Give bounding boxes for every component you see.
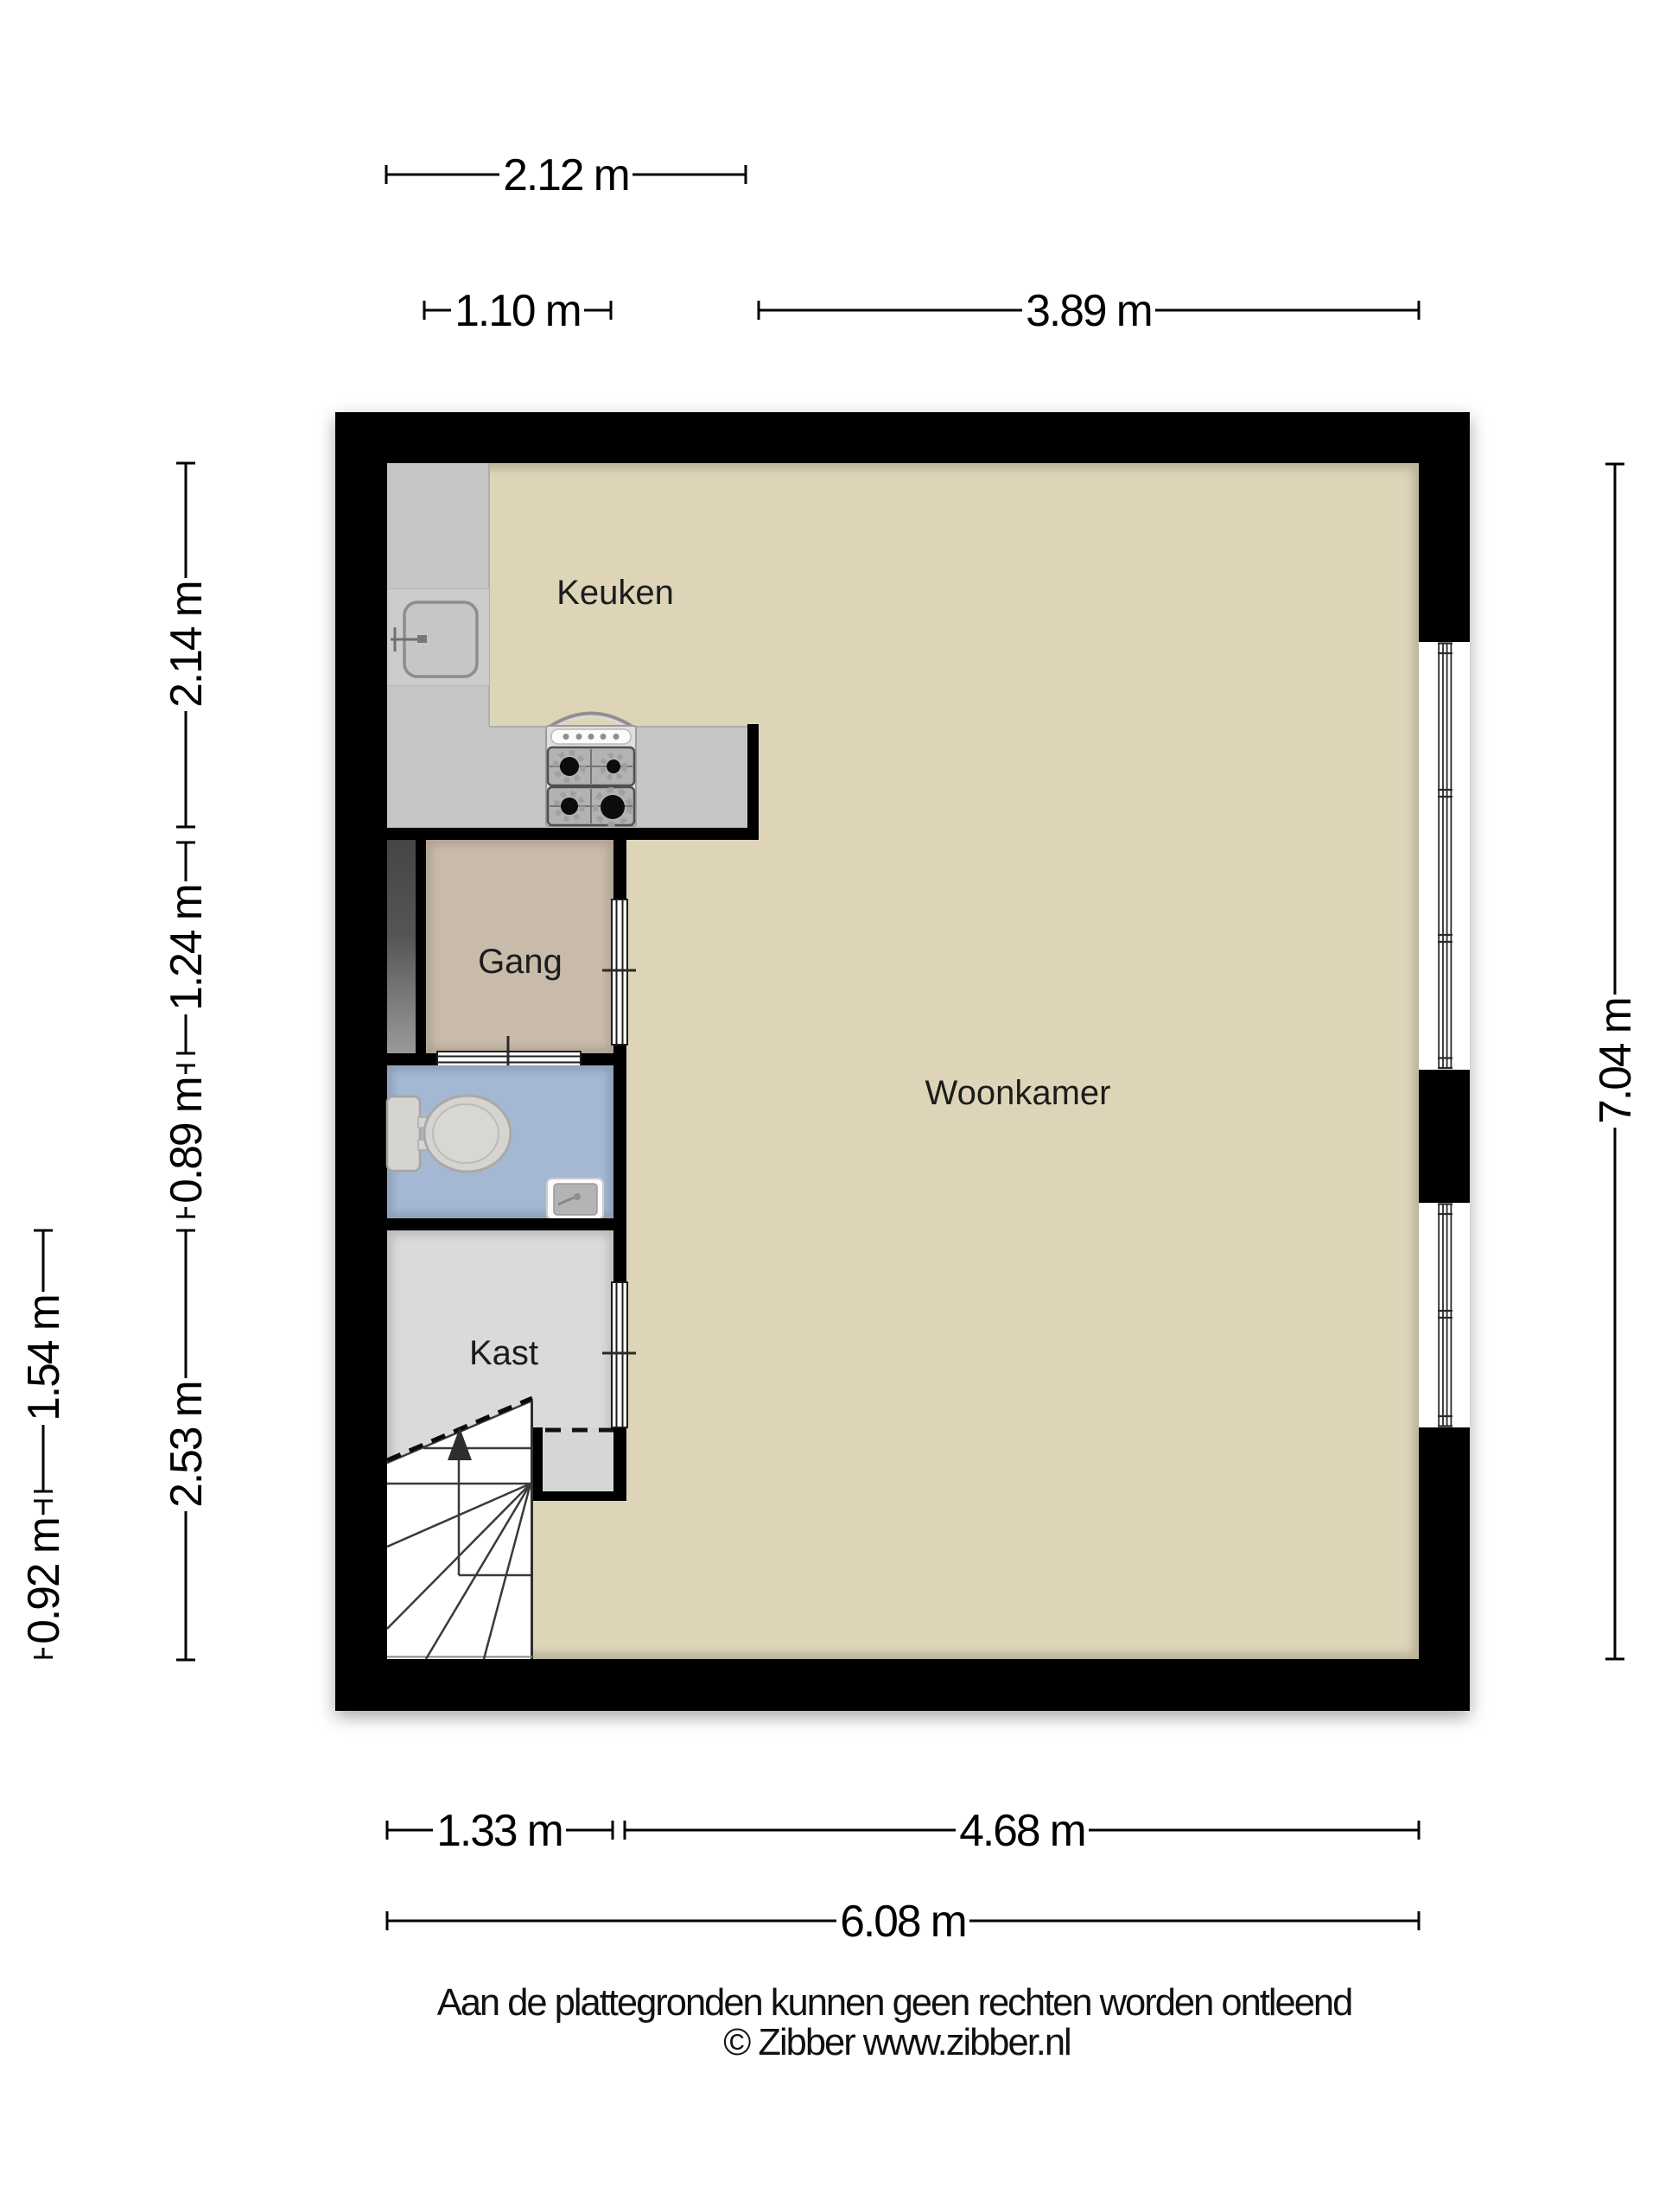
svg-text:0.92 m: 0.92 m — [18, 1518, 68, 1643]
svg-text:7.04 m: 7.04 m — [1590, 998, 1640, 1123]
svg-text:2.53 m: 2.53 m — [161, 1382, 211, 1507]
svg-text:1.24 m: 1.24 m — [161, 885, 211, 1010]
svg-text:Woonkamer: Woonkamer — [925, 1074, 1111, 1112]
svg-text:4.68 m: 4.68 m — [959, 1805, 1084, 1855]
svg-text:1.10 m: 1.10 m — [454, 285, 580, 335]
svg-text:Kast: Kast — [469, 1334, 538, 1372]
svg-text:Gang: Gang — [478, 943, 563, 981]
svg-text:6.08 m: 6.08 m — [840, 1896, 965, 1946]
svg-text:2.12 m: 2.12 m — [503, 149, 628, 200]
svg-text:0.89 m: 0.89 m — [161, 1077, 211, 1203]
svg-text:3.89 m: 3.89 m — [1026, 285, 1151, 335]
svg-text:Keuken: Keuken — [556, 574, 674, 612]
svg-text:2.14 m: 2.14 m — [161, 582, 211, 707]
svg-text:1.54 m: 1.54 m — [18, 1295, 68, 1421]
svg-text:1.33 m: 1.33 m — [436, 1805, 562, 1855]
svg-text:Aan de plattegronden kunnen ge: Aan de plattegronden kunnen geen rechten… — [437, 1982, 1352, 2024]
svg-text:© Zibber www.zibber.nl: © Zibber www.zibber.nl — [723, 2022, 1070, 2063]
